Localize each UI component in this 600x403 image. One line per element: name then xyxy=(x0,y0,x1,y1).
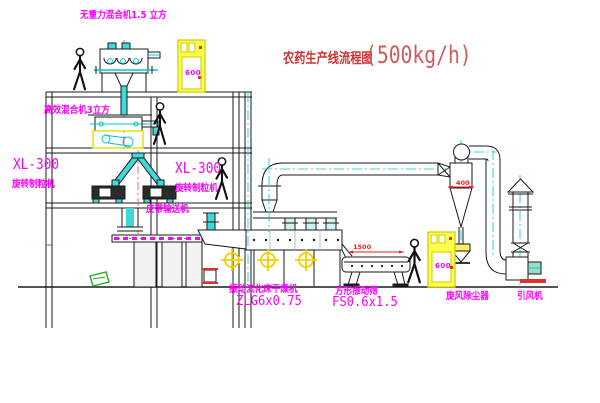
vibrating-screen xyxy=(342,251,410,288)
person-second-floor xyxy=(154,103,165,144)
vibration-motor-symbols xyxy=(221,249,317,271)
diagram-title: 农药生产线流程图 xyxy=(283,52,373,66)
granulator-left-model: XL-300 xyxy=(13,157,59,172)
mid-mixer-label: 高效混合机3立方 xyxy=(44,106,110,116)
control-cabinet-right xyxy=(428,232,455,287)
granulator-left-name: 旋转制粒机 xyxy=(12,180,55,190)
cabinet-top-text: 600 xyxy=(185,70,201,77)
induced-draft-fan xyxy=(506,257,546,283)
screen-dimension-text: 1500 xyxy=(353,244,371,251)
cyclone-dimension-text: 400 xyxy=(456,180,470,187)
top-mixer-label: 无重力混合机1.5 立方 xyxy=(80,11,167,21)
person-ground xyxy=(408,239,420,282)
main-exhaust-duct xyxy=(258,163,450,212)
person-top-floor xyxy=(74,48,85,89)
high-efficiency-mixer xyxy=(88,115,159,148)
fan-label: 引风机 xyxy=(517,292,543,302)
granulator-mid-name: 旋转制粒机 xyxy=(175,184,218,194)
exhaust-stack xyxy=(508,179,533,257)
cyclone-label: 旋风除尘器 xyxy=(446,292,489,302)
cabinet-right-text: 600 xyxy=(435,263,451,270)
diagram-capacity: (500kg/h) xyxy=(365,43,472,67)
flow-diagram-canvas: 无重力混合机1.5 立方 高效混合机3立方 XL-300 旋转制粒机 XL-30… xyxy=(0,0,600,403)
exhaust-manifold xyxy=(253,212,339,230)
granulator-right xyxy=(143,180,176,203)
stack-rain-cap xyxy=(508,179,533,192)
screen-model-label: FS0.6x1.5 xyxy=(332,296,398,310)
belt-conveyor-label: 皮带输送机 xyxy=(146,205,189,215)
granulator-mid-model: XL-300 xyxy=(175,161,221,176)
dryer-model-label: ZLG6x0.75 xyxy=(236,295,302,309)
control-cabinet-top xyxy=(178,40,205,92)
green-pallet xyxy=(90,272,109,286)
